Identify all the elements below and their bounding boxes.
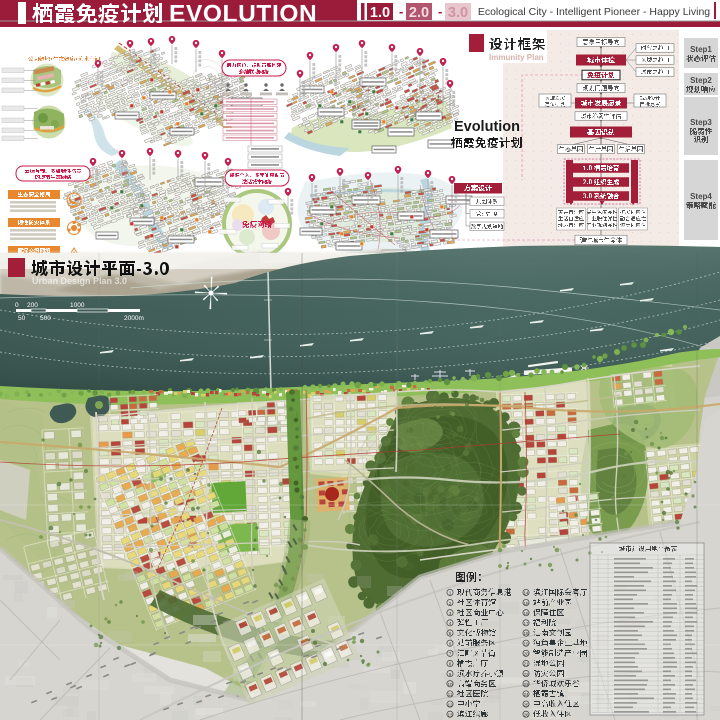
svg-text:8: 8	[449, 662, 452, 667]
svg-text:Immunity Plan: Immunity Plan	[489, 53, 544, 62]
svg-text:4: 4	[449, 621, 452, 626]
svg-text:Step1: Step1	[690, 45, 712, 54]
svg-text:500: 500	[40, 315, 51, 322]
svg-text:15: 15	[523, 601, 529, 606]
svg-text:20: 20	[523, 652, 529, 657]
svg-text:Step4: Step4	[690, 192, 712, 201]
svg-text:17: 17	[523, 621, 529, 626]
svg-text:3.0: 3.0	[448, 5, 468, 21]
svg-text:2000m: 2000m	[124, 315, 144, 322]
svg-text:Evolution: Evolution	[454, 119, 520, 135]
svg-text:Step2: Step2	[690, 76, 712, 85]
svg-text:9: 9	[449, 672, 452, 677]
svg-text:Step3: Step3	[690, 118, 712, 127]
svg-text:Urban Design Plan 3.0: Urban Design Plan 3.0	[32, 276, 127, 286]
svg-text:25: 25	[523, 702, 529, 707]
svg-text:16: 16	[523, 611, 529, 616]
svg-text:1000: 1000	[70, 302, 85, 309]
svg-text:200: 200	[27, 302, 38, 309]
svg-text:-: -	[438, 4, 442, 19]
svg-text:24: 24	[523, 692, 529, 697]
svg-text:23: 23	[523, 682, 529, 687]
svg-text:12: 12	[447, 702, 453, 707]
svg-text:-: -	[399, 4, 403, 19]
svg-text:21: 21	[523, 662, 529, 667]
svg-text:5: 5	[449, 631, 452, 636]
svg-text:3: 3	[449, 611, 452, 616]
svg-text:50: 50	[18, 315, 26, 322]
svg-text:0: 0	[15, 302, 19, 309]
svg-text:1.0: 1.0	[370, 5, 390, 21]
svg-text:18: 18	[523, 631, 529, 636]
svg-text:2.0: 2.0	[409, 5, 429, 21]
svg-text:10: 10	[447, 682, 453, 687]
svg-text:2: 2	[449, 601, 452, 606]
svg-text:13: 13	[447, 712, 453, 717]
svg-text:Ecological City - Intelligent: Ecological City - Intelligent Pioneer - …	[478, 6, 710, 18]
svg-text:1: 1	[449, 591, 452, 596]
svg-text:11: 11	[448, 692, 453, 697]
svg-text:EVOLUTION: EVOLUTION	[169, 1, 317, 28]
svg-text:22: 22	[523, 672, 529, 677]
svg-text:7: 7	[449, 652, 452, 657]
svg-text:14: 14	[523, 591, 529, 596]
svg-text:26: 26	[523, 712, 529, 717]
